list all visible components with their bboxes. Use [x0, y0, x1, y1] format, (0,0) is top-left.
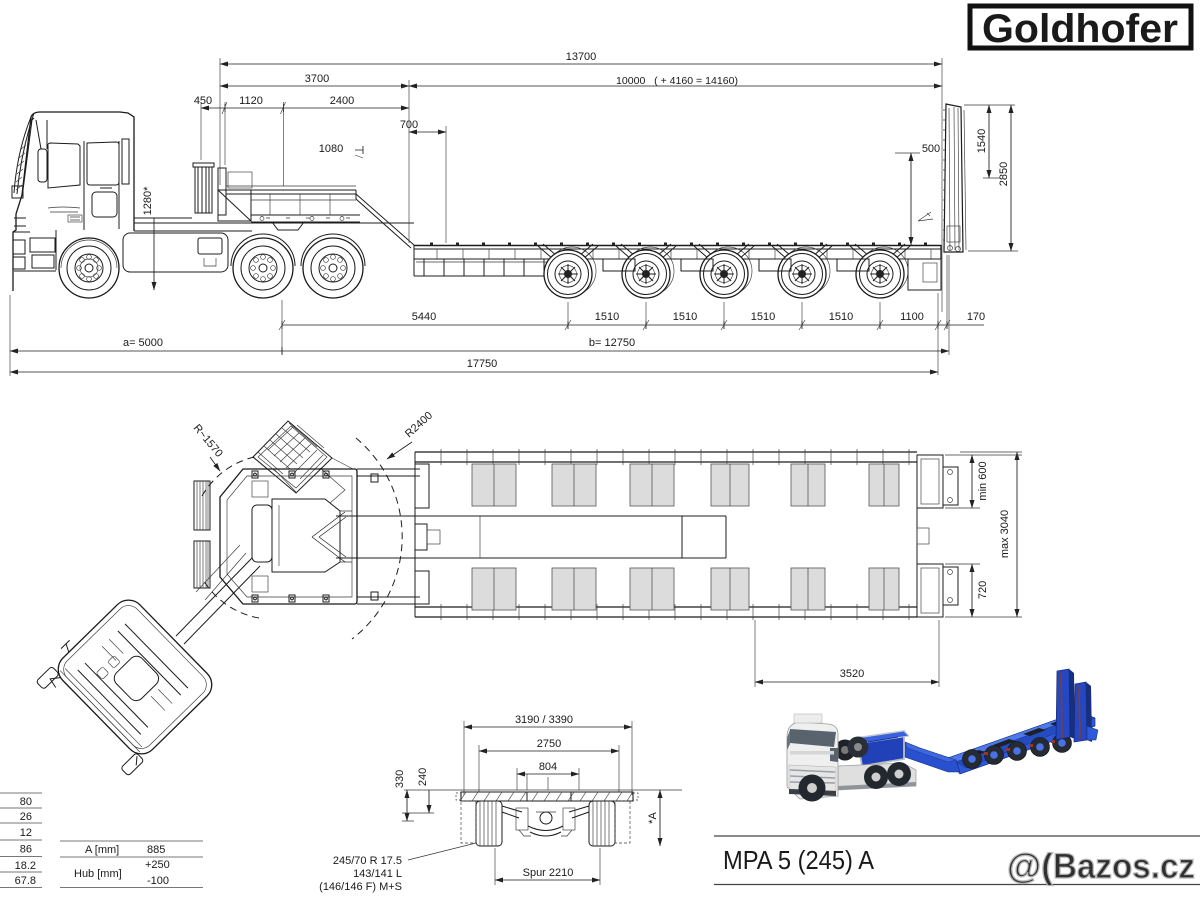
svg-text:Spur 2210: Spur 2210 [523, 867, 574, 879]
svg-text:804: 804 [539, 761, 557, 773]
svg-text:2400: 2400 [330, 95, 354, 107]
svg-text:@(: @( [1007, 847, 1053, 886]
svg-text:10000 ( + 4160 = 14160): 10000 ( + 4160 = 14160) [616, 76, 738, 87]
svg-text:+250: +250 [145, 859, 170, 871]
svg-text:1510: 1510 [673, 311, 697, 323]
svg-text:245/70 R 17.5: 245/70 R 17.5 [333, 855, 402, 867]
svg-text:86: 86 [20, 844, 32, 856]
svg-text:5440: 5440 [412, 311, 436, 323]
svg-text:-100: -100 [147, 875, 169, 887]
svg-text:80: 80 [20, 796, 32, 808]
svg-text:17750: 17750 [467, 358, 498, 370]
svg-text:1540: 1540 [976, 129, 988, 153]
svg-text:3190 / 3390: 3190 / 3390 [515, 714, 573, 726]
svg-text:1080: 1080 [319, 143, 343, 155]
svg-text:500: 500 [922, 143, 940, 155]
svg-text:3520: 3520 [840, 668, 864, 680]
svg-text:1510: 1510 [751, 311, 775, 323]
svg-text:170: 170 [967, 311, 985, 323]
svg-text:67.8: 67.8 [15, 875, 36, 887]
svg-text:1510: 1510 [829, 311, 853, 323]
svg-text:1280*: 1280* [142, 186, 154, 215]
svg-text:(146/146 F) M+S: (146/146 F) M+S [319, 881, 402, 893]
svg-text:2750: 2750 [537, 738, 561, 750]
svg-text:18.2: 18.2 [15, 860, 36, 872]
svg-text:1100: 1100 [900, 311, 924, 323]
svg-text:MPA 5 (245) A: MPA 5 (245) A [723, 845, 875, 875]
svg-text:1120: 1120 [239, 95, 263, 107]
svg-text:*A: *A [647, 812, 659, 824]
svg-text:A [mm]: A [mm] [85, 844, 119, 856]
svg-text:b= 12750: b= 12750 [589, 337, 635, 349]
svg-text:1510: 1510 [595, 311, 619, 323]
svg-text:max 3040: max 3040 [999, 510, 1011, 558]
svg-text:13700: 13700 [566, 51, 597, 63]
svg-text:a= 5000: a= 5000 [123, 337, 163, 349]
svg-text:26: 26 [20, 811, 32, 823]
svg-text:12: 12 [20, 827, 32, 839]
svg-text:Hub [mm]: Hub [mm] [74, 868, 122, 880]
svg-text:2850: 2850 [998, 162, 1010, 186]
svg-text:Bazos.cz: Bazos.cz [1053, 847, 1195, 886]
svg-text:143/141 L: 143/141 L [353, 868, 402, 880]
svg-text:700: 700 [400, 119, 418, 131]
svg-text:Goldhofer: Goldhofer [982, 7, 1178, 51]
svg-text:330: 330 [394, 770, 406, 788]
svg-text:885: 885 [147, 844, 165, 856]
svg-text:450: 450 [194, 95, 212, 107]
svg-text:720: 720 [977, 581, 989, 599]
svg-text:min 600: min 600 [977, 461, 989, 500]
svg-text:3700: 3700 [305, 73, 329, 85]
svg-text:240: 240 [417, 768, 429, 786]
